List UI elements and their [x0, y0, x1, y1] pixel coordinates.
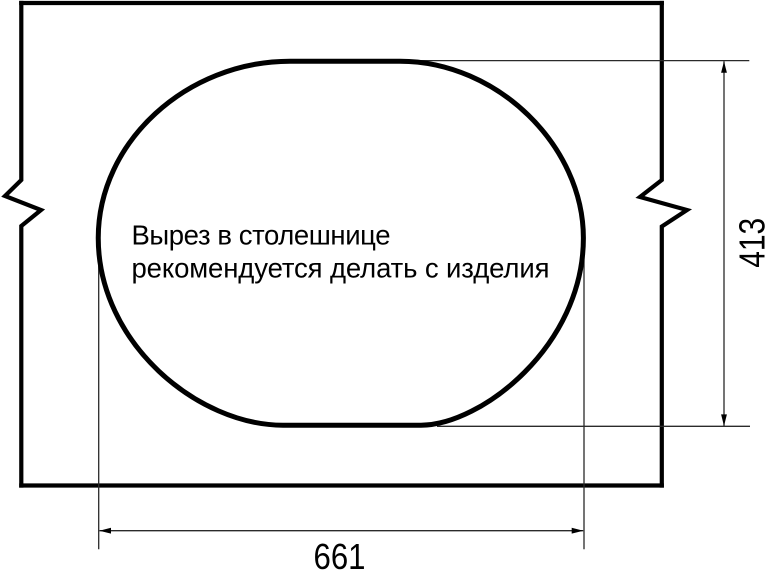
- svg-text:рекомендуется делать с изделия: рекомендуется делать с изделия: [132, 253, 550, 284]
- svg-text:413: 413: [732, 218, 765, 268]
- svg-text:Вырез в столешнице: Вырез в столешнице: [132, 219, 391, 250]
- svg-text:661: 661: [314, 536, 366, 570]
